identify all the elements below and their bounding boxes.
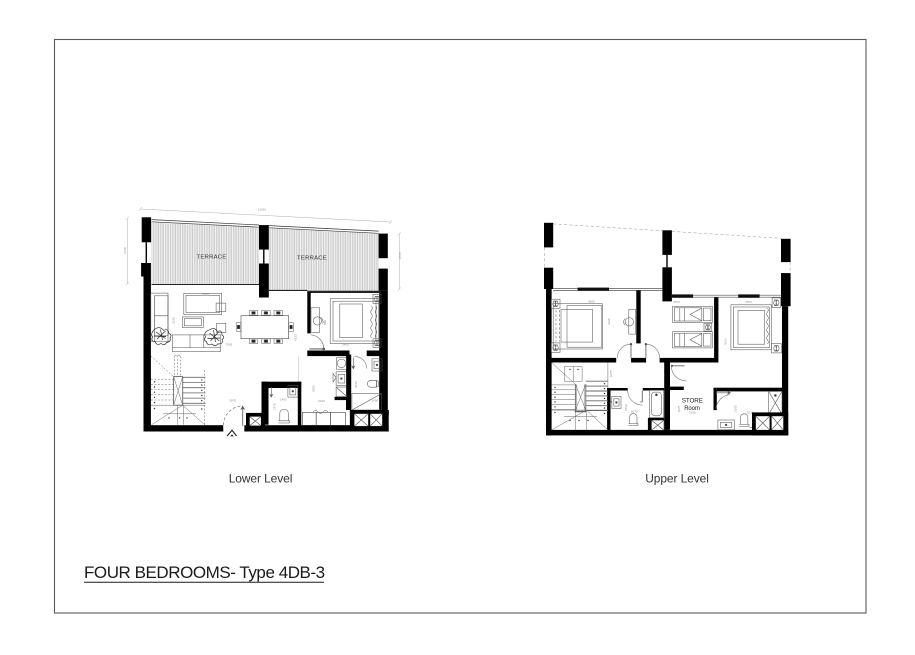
svg-text:1975: 1975 bbox=[272, 403, 276, 410]
svg-text:2085: 2085 bbox=[706, 324, 710, 331]
svg-text:5200: 5200 bbox=[202, 292, 209, 296]
svg-text:3225: 3225 bbox=[607, 318, 611, 325]
svg-text:2870: 2870 bbox=[745, 300, 752, 304]
svg-text:3085: 3085 bbox=[311, 385, 315, 392]
svg-text:2070: 2070 bbox=[631, 410, 638, 414]
svg-text:Lower Level: Lower Level bbox=[229, 472, 293, 486]
svg-text:STORE: STORE bbox=[682, 398, 703, 405]
svg-text:3335: 3335 bbox=[171, 317, 175, 324]
svg-text:2070: 2070 bbox=[354, 381, 358, 388]
svg-text:4333: 4333 bbox=[293, 334, 297, 341]
svg-text:1500: 1500 bbox=[624, 404, 628, 411]
svg-text:1075: 1075 bbox=[609, 370, 613, 377]
svg-text:4300: 4300 bbox=[588, 299, 595, 303]
svg-text:2705: 2705 bbox=[398, 252, 402, 259]
svg-text:3130: 3130 bbox=[123, 247, 127, 254]
svg-text:3070: 3070 bbox=[673, 300, 680, 304]
svg-text:2670: 2670 bbox=[230, 398, 237, 402]
svg-text:Upper Level: Upper Level bbox=[645, 472, 709, 486]
svg-text:FOUR BEDROOMS- Type 4DB-3: FOUR BEDROOMS- Type 4DB-3 bbox=[84, 563, 325, 582]
svg-text:7065: 7065 bbox=[226, 342, 233, 346]
svg-text:TERRACE: TERRACE bbox=[297, 255, 327, 261]
svg-text:3460: 3460 bbox=[342, 343, 349, 347]
svg-text:2100: 2100 bbox=[689, 410, 696, 414]
svg-text:1400: 1400 bbox=[280, 398, 287, 402]
svg-text:4333: 4333 bbox=[723, 338, 727, 345]
svg-text:TERRACE: TERRACE bbox=[197, 255, 227, 261]
svg-text:1875: 1875 bbox=[677, 405, 681, 412]
svg-text:1500: 1500 bbox=[734, 405, 738, 412]
svg-text:1400: 1400 bbox=[372, 399, 379, 403]
svg-text:11910: 11910 bbox=[258, 208, 266, 212]
svg-text:890: 890 bbox=[323, 320, 327, 325]
svg-text:2230: 2230 bbox=[318, 399, 325, 403]
